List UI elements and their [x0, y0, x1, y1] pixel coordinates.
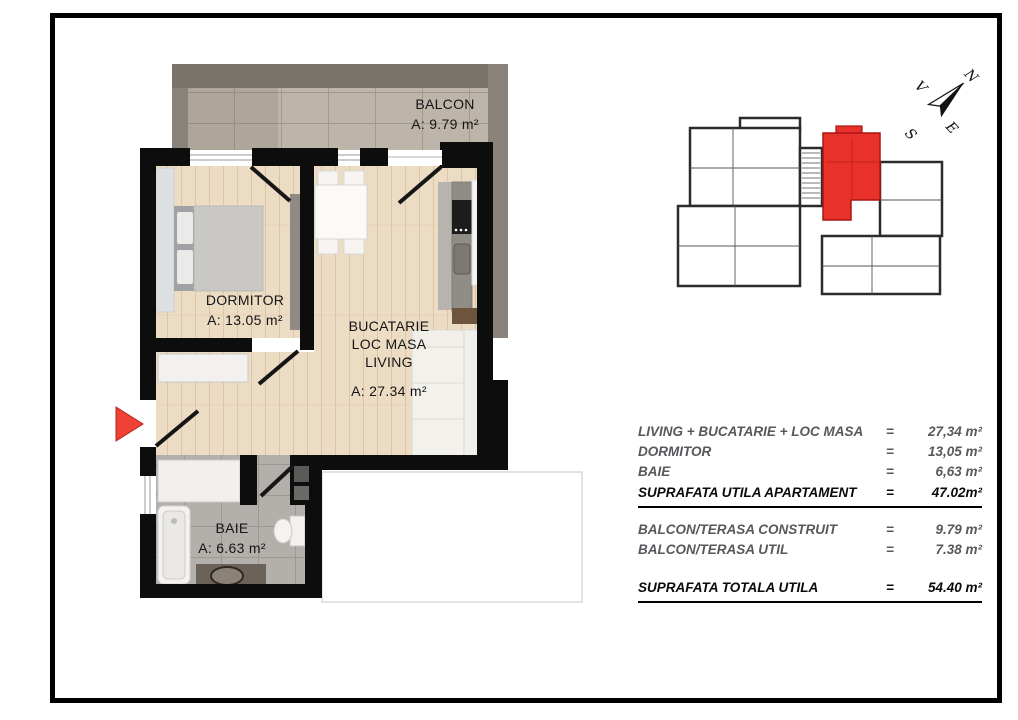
equals-sign: =	[886, 485, 894, 500]
shaft-grille	[294, 466, 309, 482]
equals-sign: =	[886, 542, 894, 557]
balcony-area: A: 9.79 m²	[380, 115, 510, 133]
bath-window-opening	[140, 476, 156, 514]
bathroom-name: BAIE	[158, 519, 306, 537]
wall-left-upper	[140, 148, 156, 400]
area-row-balcon-construit: BALCON/TERASA CONSTRUIT =9.79 m²	[638, 522, 982, 542]
balcony-label: BALCON A: 9.79 m²	[380, 95, 510, 133]
area-label: BAIE	[638, 464, 670, 479]
kitchen-sink	[454, 244, 470, 274]
living-name-line2: LOC MASA	[314, 335, 464, 353]
area-value: 7.38 m²	[935, 542, 982, 557]
key-plan-staircase	[800, 148, 822, 206]
equals-sign: =	[886, 424, 894, 439]
stove-knob	[460, 229, 463, 232]
wall-bath-post	[240, 455, 257, 505]
hall-closet	[158, 460, 240, 502]
dining-chair	[344, 239, 364, 254]
area-row-baie: BAIE =6,63 m²	[638, 464, 982, 484]
key-plan-block	[690, 128, 800, 206]
equals-sign: =	[886, 464, 894, 479]
dining-chair	[344, 171, 364, 186]
area-row-dormitor: DORMITOR =13,05 m²	[638, 444, 982, 464]
wall-living-bottom	[303, 455, 508, 470]
living-name-line3: LIVING	[314, 353, 464, 371]
area-value: 6,63 m²	[935, 464, 982, 479]
wall-bedroom-bottom	[140, 338, 252, 352]
living-window-opening	[338, 150, 360, 165]
area-row-total-apartment: SUPRAFATA UTILA APARTAMENT =47.02m²	[638, 485, 982, 508]
wall-left-mid	[140, 447, 156, 476]
kitchen-stove	[452, 200, 472, 234]
area-row-balcon-util: BALCON/TERASA UTIL =7.38 m²	[638, 542, 982, 562]
hall-dresser	[158, 354, 248, 382]
living-label: BUCATARIE LOC MASA LIVING A: 27.34 m²	[314, 317, 464, 400]
shaft-grille	[294, 486, 309, 500]
wall-segment	[360, 148, 388, 166]
equals-sign: =	[886, 580, 894, 595]
key-plan-block	[822, 236, 940, 294]
living-area: A: 27.34 m²	[314, 382, 464, 400]
floor-plan-page: N E S V BALCON A: 9.79 m² DORMITOR A: 13…	[0, 0, 1018, 720]
equals-sign: =	[886, 522, 894, 537]
wall-right	[477, 148, 493, 380]
balcony-wall-left	[172, 88, 188, 150]
key-plan-block	[880, 162, 942, 236]
area-table: LIVING + BUCATARIE + LOC MASA =27,34 m² …	[638, 424, 982, 603]
compass-letter-v: V	[911, 78, 931, 98]
area-label: LIVING + BUCATARIE + LOC MASA	[638, 424, 863, 439]
area-label: BALCON/TERASA CONSTRUIT	[638, 522, 837, 537]
area-label: SUPRAFATA UTILA APARTAMENT	[638, 485, 857, 500]
dining-chair	[318, 239, 338, 254]
bathroom-label: BAIE A: 6.63 m²	[158, 519, 306, 557]
bedroom-label: DORMITOR A: 13.05 m²	[170, 291, 320, 329]
wall-segment	[252, 148, 338, 166]
area-value: 9.79 m²	[935, 522, 982, 537]
entrance-arrow-icon	[116, 407, 143, 441]
key-plan	[678, 118, 942, 294]
bath-sink	[211, 567, 243, 585]
stove-knob	[455, 229, 458, 232]
bedroom-balcony-opening	[190, 150, 252, 165]
area-value: 54.40 m²	[928, 580, 982, 595]
area-label: DORMITOR	[638, 444, 711, 459]
living-name-line1: BUCATARIE	[314, 317, 464, 335]
bed-pillow	[177, 250, 193, 284]
bathroom-area: A: 6.63 m²	[158, 539, 306, 557]
bed	[194, 206, 263, 291]
dining-chair	[318, 171, 338, 186]
area-row-total-utila: SUPRAFATA TOTALA UTILA =54.40 m²	[638, 580, 982, 603]
bed-pillow	[177, 212, 193, 244]
area-value: 13,05 m²	[928, 444, 982, 459]
balcony-name: BALCON	[380, 95, 510, 113]
wall-bath-bottom	[140, 584, 322, 598]
compass-letter-e: E	[941, 118, 960, 137]
wall-right-step	[477, 380, 508, 468]
area-row-living: LIVING + BUCATARIE + LOC MASA =27,34 m²	[638, 424, 982, 444]
area-value: 27,34 m²	[928, 424, 982, 439]
compass-letter-s: S	[901, 126, 919, 144]
stove-knob	[465, 229, 468, 232]
compass-icon: N E S V	[882, 48, 996, 161]
balcony-shadow	[188, 88, 278, 150]
area-value: 47.02m²	[932, 485, 982, 500]
bedroom-area: A: 13.05 m²	[170, 311, 320, 329]
area-label: BALCON/TERASA UTIL	[638, 542, 788, 557]
equals-sign: =	[886, 444, 894, 459]
terrace-below-outline	[322, 472, 582, 602]
area-label: SUPRAFATA TOTALA UTILA	[638, 580, 818, 595]
dining-table	[315, 185, 367, 239]
bedroom-name: DORMITOR	[170, 291, 320, 309]
balcony-wall-top	[172, 64, 508, 88]
